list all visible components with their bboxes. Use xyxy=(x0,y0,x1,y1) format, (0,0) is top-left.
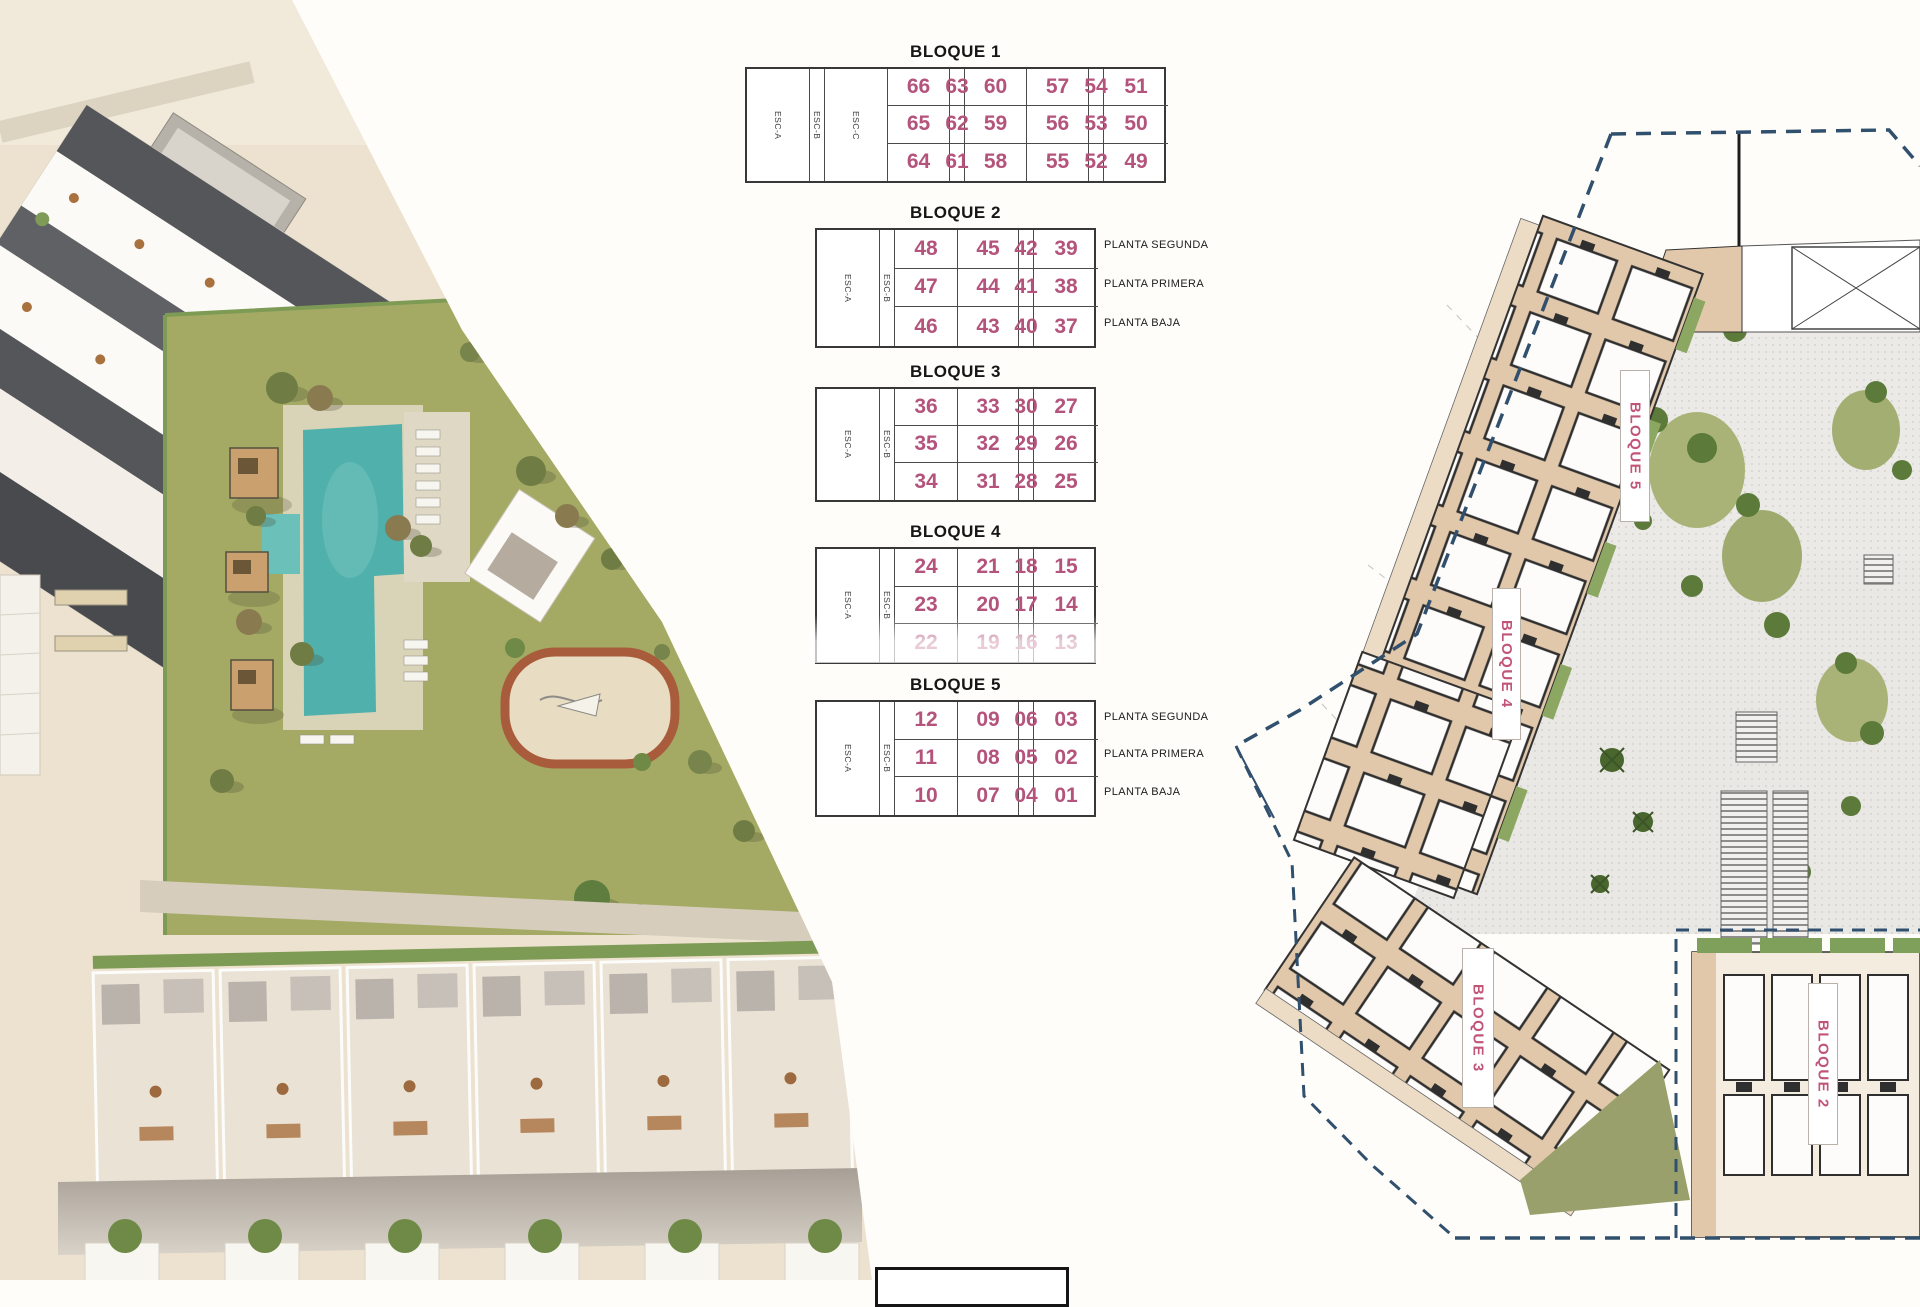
bloque1-grid: 66 ESC-A 63 60 ESC-B 57 54 ESC-C 51 65 6… xyxy=(745,67,1166,183)
unit-cell: 55 xyxy=(1027,144,1089,181)
unit-cell: 08 xyxy=(958,740,1019,778)
unit-cell: 59 xyxy=(965,106,1027,143)
stair-label: ESC-A xyxy=(817,230,880,346)
unit-cell: 64 xyxy=(888,144,950,181)
unit-cell: 30 xyxy=(1019,389,1034,426)
unit-cell: 48 xyxy=(895,230,958,269)
plan-label-bloque4: BLOQUE 4 xyxy=(1492,588,1521,740)
stair-label: ESC-B xyxy=(880,702,895,815)
unit-cell: 31 xyxy=(958,463,1019,500)
unit-cell: 63 xyxy=(950,69,965,106)
bloque3-title: BLOQUE 3 xyxy=(815,362,1096,382)
bloque5-grid: 12 ESC-A 09 06 ESC-B 03 11 08 05 02 10 0… xyxy=(815,700,1096,817)
unit-cell: 22 xyxy=(895,624,958,662)
unit-cell: 02 xyxy=(1034,740,1098,778)
pool-highlight xyxy=(322,462,378,578)
bloque4-table: BLOQUE 4 24 ESC-A 21 18 ESC-B 15 23 20 1… xyxy=(815,522,1096,664)
unit-cell: 23 xyxy=(895,587,958,625)
unit-cell: 58 xyxy=(965,144,1027,181)
unit-cell: 17 xyxy=(1019,587,1034,625)
unit-cell: 34 xyxy=(895,463,958,500)
bloque2-building xyxy=(1692,938,1920,1237)
unit-cell: 05 xyxy=(1019,740,1034,778)
bloque2-grid: 48 ESC-A 45 42 ESC-B 39 47 44 41 38 46 4… xyxy=(815,228,1096,348)
floor-label: PLANTA SEGUNDA xyxy=(1104,239,1244,251)
unit-cell: 38 xyxy=(1034,269,1098,308)
unit-cell: 03 xyxy=(1034,702,1098,740)
unit-cell: 65 xyxy=(888,106,950,143)
stair-label: ESC-A xyxy=(817,389,880,500)
bloque1-title: BLOQUE 1 xyxy=(745,42,1166,62)
stair-label: ESC-B xyxy=(880,549,895,662)
stair-label: ESC-A xyxy=(747,69,810,181)
unit-cell: 14 xyxy=(1034,587,1098,625)
stair-label: ESC-A xyxy=(817,702,880,815)
floor-label: PLANTA BAJA xyxy=(1104,786,1244,798)
unit-cell: 21 xyxy=(958,549,1019,587)
floor-label: PLANTA BAJA xyxy=(1104,317,1244,329)
bloque5-title: BLOQUE 5 xyxy=(815,675,1096,695)
bloque4-title: BLOQUE 4 xyxy=(815,522,1096,542)
unit-cell: 57 xyxy=(1027,69,1089,106)
playground xyxy=(505,638,675,771)
unit-cell: 25 xyxy=(1034,463,1098,500)
unit-cell: 29 xyxy=(1019,426,1034,463)
unit-cell: 53 xyxy=(1089,106,1104,143)
unit-cell: 04 xyxy=(1019,777,1034,815)
bloque5-table: BLOQUE 5 12 ESC-A 09 06 ESC-B 03 11 08 0… xyxy=(815,675,1096,817)
bloque2-table: BLOQUE 2 48 ESC-A 45 42 ESC-B 39 47 44 4… xyxy=(815,203,1096,348)
unit-cell: 51 xyxy=(1104,69,1168,106)
unit-cell: 09 xyxy=(958,702,1019,740)
bloque2-title: BLOQUE 2 xyxy=(815,203,1096,223)
unit-cell: 46 xyxy=(895,307,958,346)
unit-cell: 43 xyxy=(958,307,1019,346)
floor-label: PLANTA SEGUNDA xyxy=(1104,711,1244,723)
unit-cell: 37 xyxy=(1034,307,1098,346)
unit-cell: 54 xyxy=(1089,69,1104,106)
unit-cell: 07 xyxy=(958,777,1019,815)
unit-cell: 44 xyxy=(958,269,1019,308)
plan-label-bloque5: BLOQUE 5 xyxy=(1620,370,1650,522)
aerial-render xyxy=(0,0,880,1280)
unit-cell: 10 xyxy=(895,777,958,815)
unit-cell: 11 xyxy=(895,740,958,778)
stair-label: ESC-B xyxy=(880,230,895,346)
stair-label: ESC-B xyxy=(880,389,895,500)
bloque3-grid: 36 ESC-A 33 30 ESC-B 27 35 32 29 26 34 3… xyxy=(815,387,1096,502)
floor-label: PLANTA PRIMERA xyxy=(1104,278,1244,290)
unit-cell: 60 xyxy=(965,69,1027,106)
stair-label: ESC-A xyxy=(817,549,880,662)
unit-cell: 27 xyxy=(1034,389,1098,426)
unit-cell: 42 xyxy=(1019,230,1034,269)
unit-cell: 39 xyxy=(1034,230,1098,269)
stair-label: ESC-B xyxy=(810,69,825,181)
unit-cell: 24 xyxy=(895,549,958,587)
unit-cell: 18 xyxy=(1019,549,1034,587)
facade-shadow xyxy=(58,1168,862,1255)
unit-cell: 50 xyxy=(1104,106,1168,143)
bloque3-table: BLOQUE 3 36 ESC-A 33 30 ESC-B 27 35 32 2… xyxy=(815,362,1096,502)
unit-cell: 47 xyxy=(895,269,958,308)
unit-cell: 35 xyxy=(895,426,958,463)
unit-cell: 13 xyxy=(1034,624,1098,662)
unit-cell: 26 xyxy=(1034,426,1098,463)
legend-box xyxy=(875,1267,1069,1307)
unit-cell: 20 xyxy=(958,587,1019,625)
unit-cell: 12 xyxy=(895,702,958,740)
plan-label-bloque3: BLOQUE 3 xyxy=(1462,948,1494,1108)
unit-cell: 28 xyxy=(1019,463,1034,500)
unit-cell: 49 xyxy=(1104,144,1168,181)
unit-cell: 01 xyxy=(1034,777,1098,815)
stair-label: ESC-C xyxy=(825,69,888,181)
unit-cell: 33 xyxy=(958,389,1019,426)
unit-cell: 61 xyxy=(950,144,965,181)
plan-label-bloque2: BLOQUE 2 xyxy=(1808,983,1838,1145)
unit-cell: 45 xyxy=(958,230,1019,269)
unit-cell: 06 xyxy=(1019,702,1034,740)
floor-label: PLANTA PRIMERA xyxy=(1104,748,1244,760)
left-edge-terraces xyxy=(0,575,40,775)
render-clip-group xyxy=(0,0,880,1280)
unit-cell: 41 xyxy=(1019,269,1034,308)
bloque4-grid: 24 ESC-A 21 18 ESC-B 15 23 20 17 14 22 1… xyxy=(815,547,1096,664)
garden-lawn xyxy=(165,300,828,935)
unit-cell: 40 xyxy=(1019,307,1034,346)
unit-cell: 15 xyxy=(1034,549,1098,587)
unit-cell: 36 xyxy=(895,389,958,426)
unit-cell: 66 xyxy=(888,69,950,106)
unit-cell: 16 xyxy=(1019,624,1034,662)
unit-cell: 52 xyxy=(1089,144,1104,181)
unit-cell: 62 xyxy=(950,106,965,143)
unit-cell: 56 xyxy=(1027,106,1089,143)
unit-cell: 32 xyxy=(958,426,1019,463)
unit-cell: 19 xyxy=(958,624,1019,662)
bloque1-table: BLOQUE 1 66 ESC-A 63 60 ESC-B 57 54 ESC-… xyxy=(745,42,1166,183)
